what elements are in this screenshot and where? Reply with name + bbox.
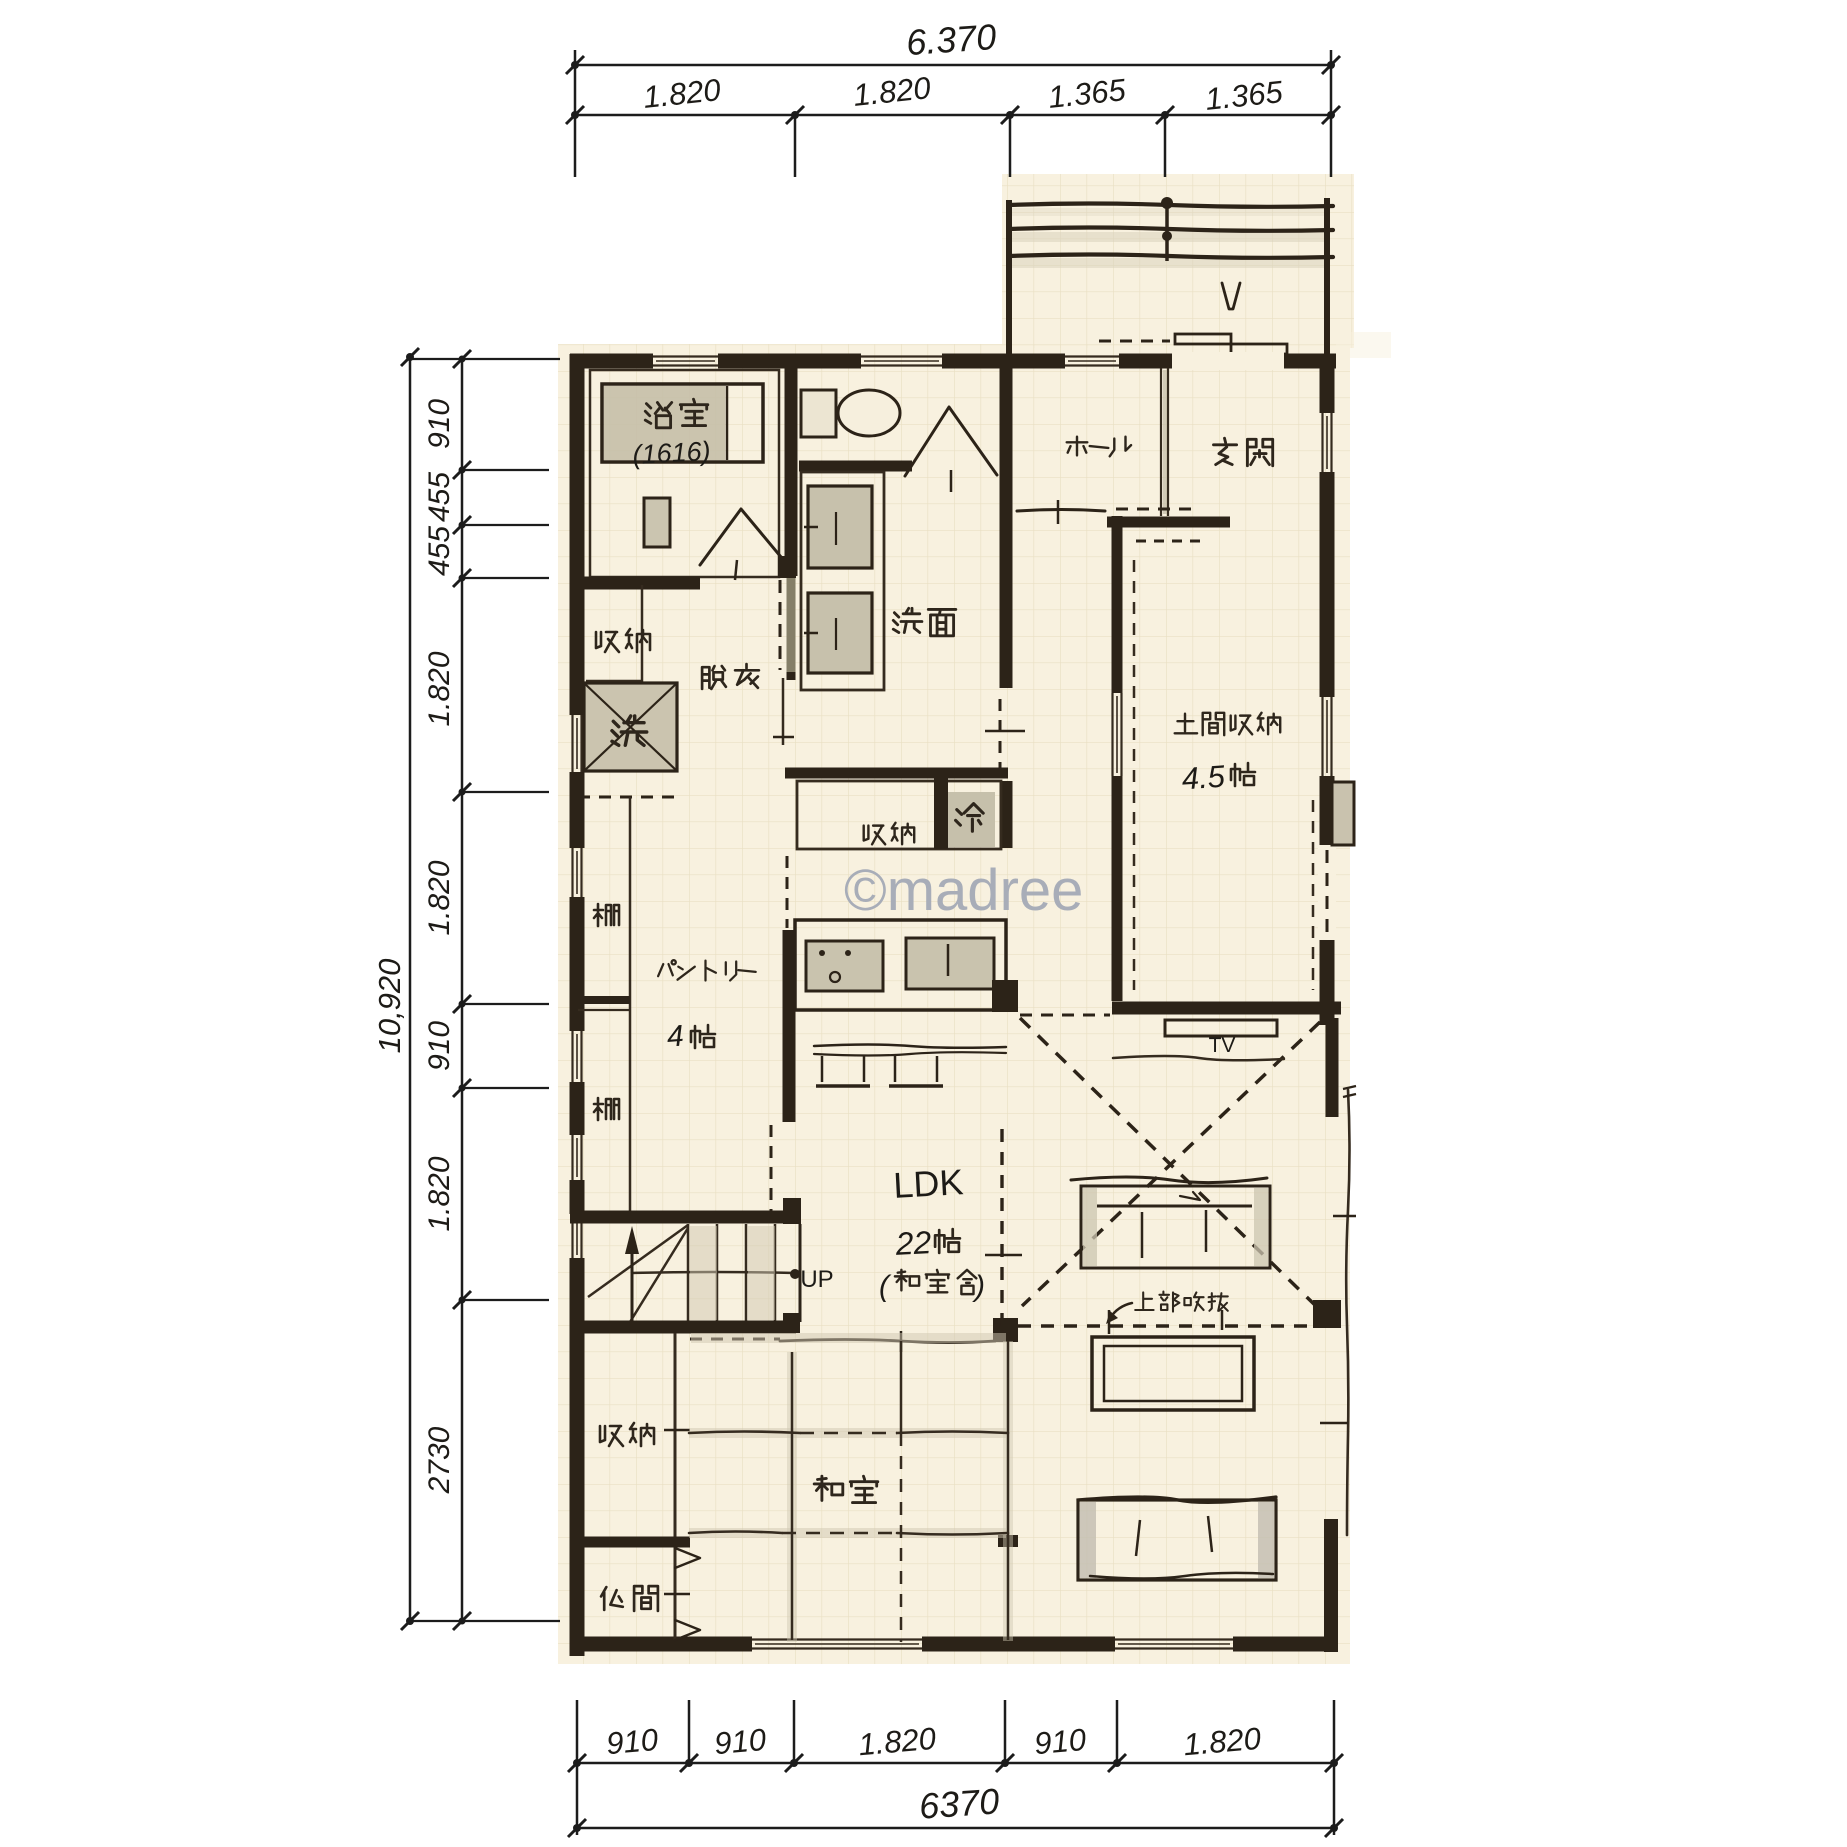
svg-text:1.820: 1.820 [1182,1721,1262,1763]
svg-text:UP: UP [800,1266,833,1293]
svg-text:1.820: 1.820 [423,651,456,726]
svg-text:4.5: 4.5 [1181,759,1227,797]
svg-text:1.820: 1.820 [423,860,456,935]
svg-text:6.370: 6.370 [905,16,998,63]
svg-text:1.820: 1.820 [423,1156,456,1231]
svg-text:2730: 2730 [423,1426,456,1494]
svg-text:910: 910 [423,1021,456,1071]
svg-text:455: 455 [423,472,456,522]
svg-text:(1616): (1616) [632,436,712,470]
svg-text:10,920: 10,920 [372,959,407,1054]
svg-text:455: 455 [423,526,456,576]
svg-text:TV: TV [1209,1034,1236,1057]
svg-text:910: 910 [423,399,456,449]
svg-text:22: 22 [894,1224,933,1262]
svg-text:910: 910 [1033,1722,1088,1761]
svg-text:910: 910 [713,1722,768,1761]
svg-text:1.820: 1.820 [857,1721,937,1763]
svg-text:LDK: LDK [892,1161,964,1206]
svg-text:6370: 6370 [918,1780,1001,1826]
svg-text:©madree: ©madree [844,858,1083,923]
svg-text:910: 910 [605,1722,660,1761]
svg-text:4: 4 [666,1019,685,1053]
